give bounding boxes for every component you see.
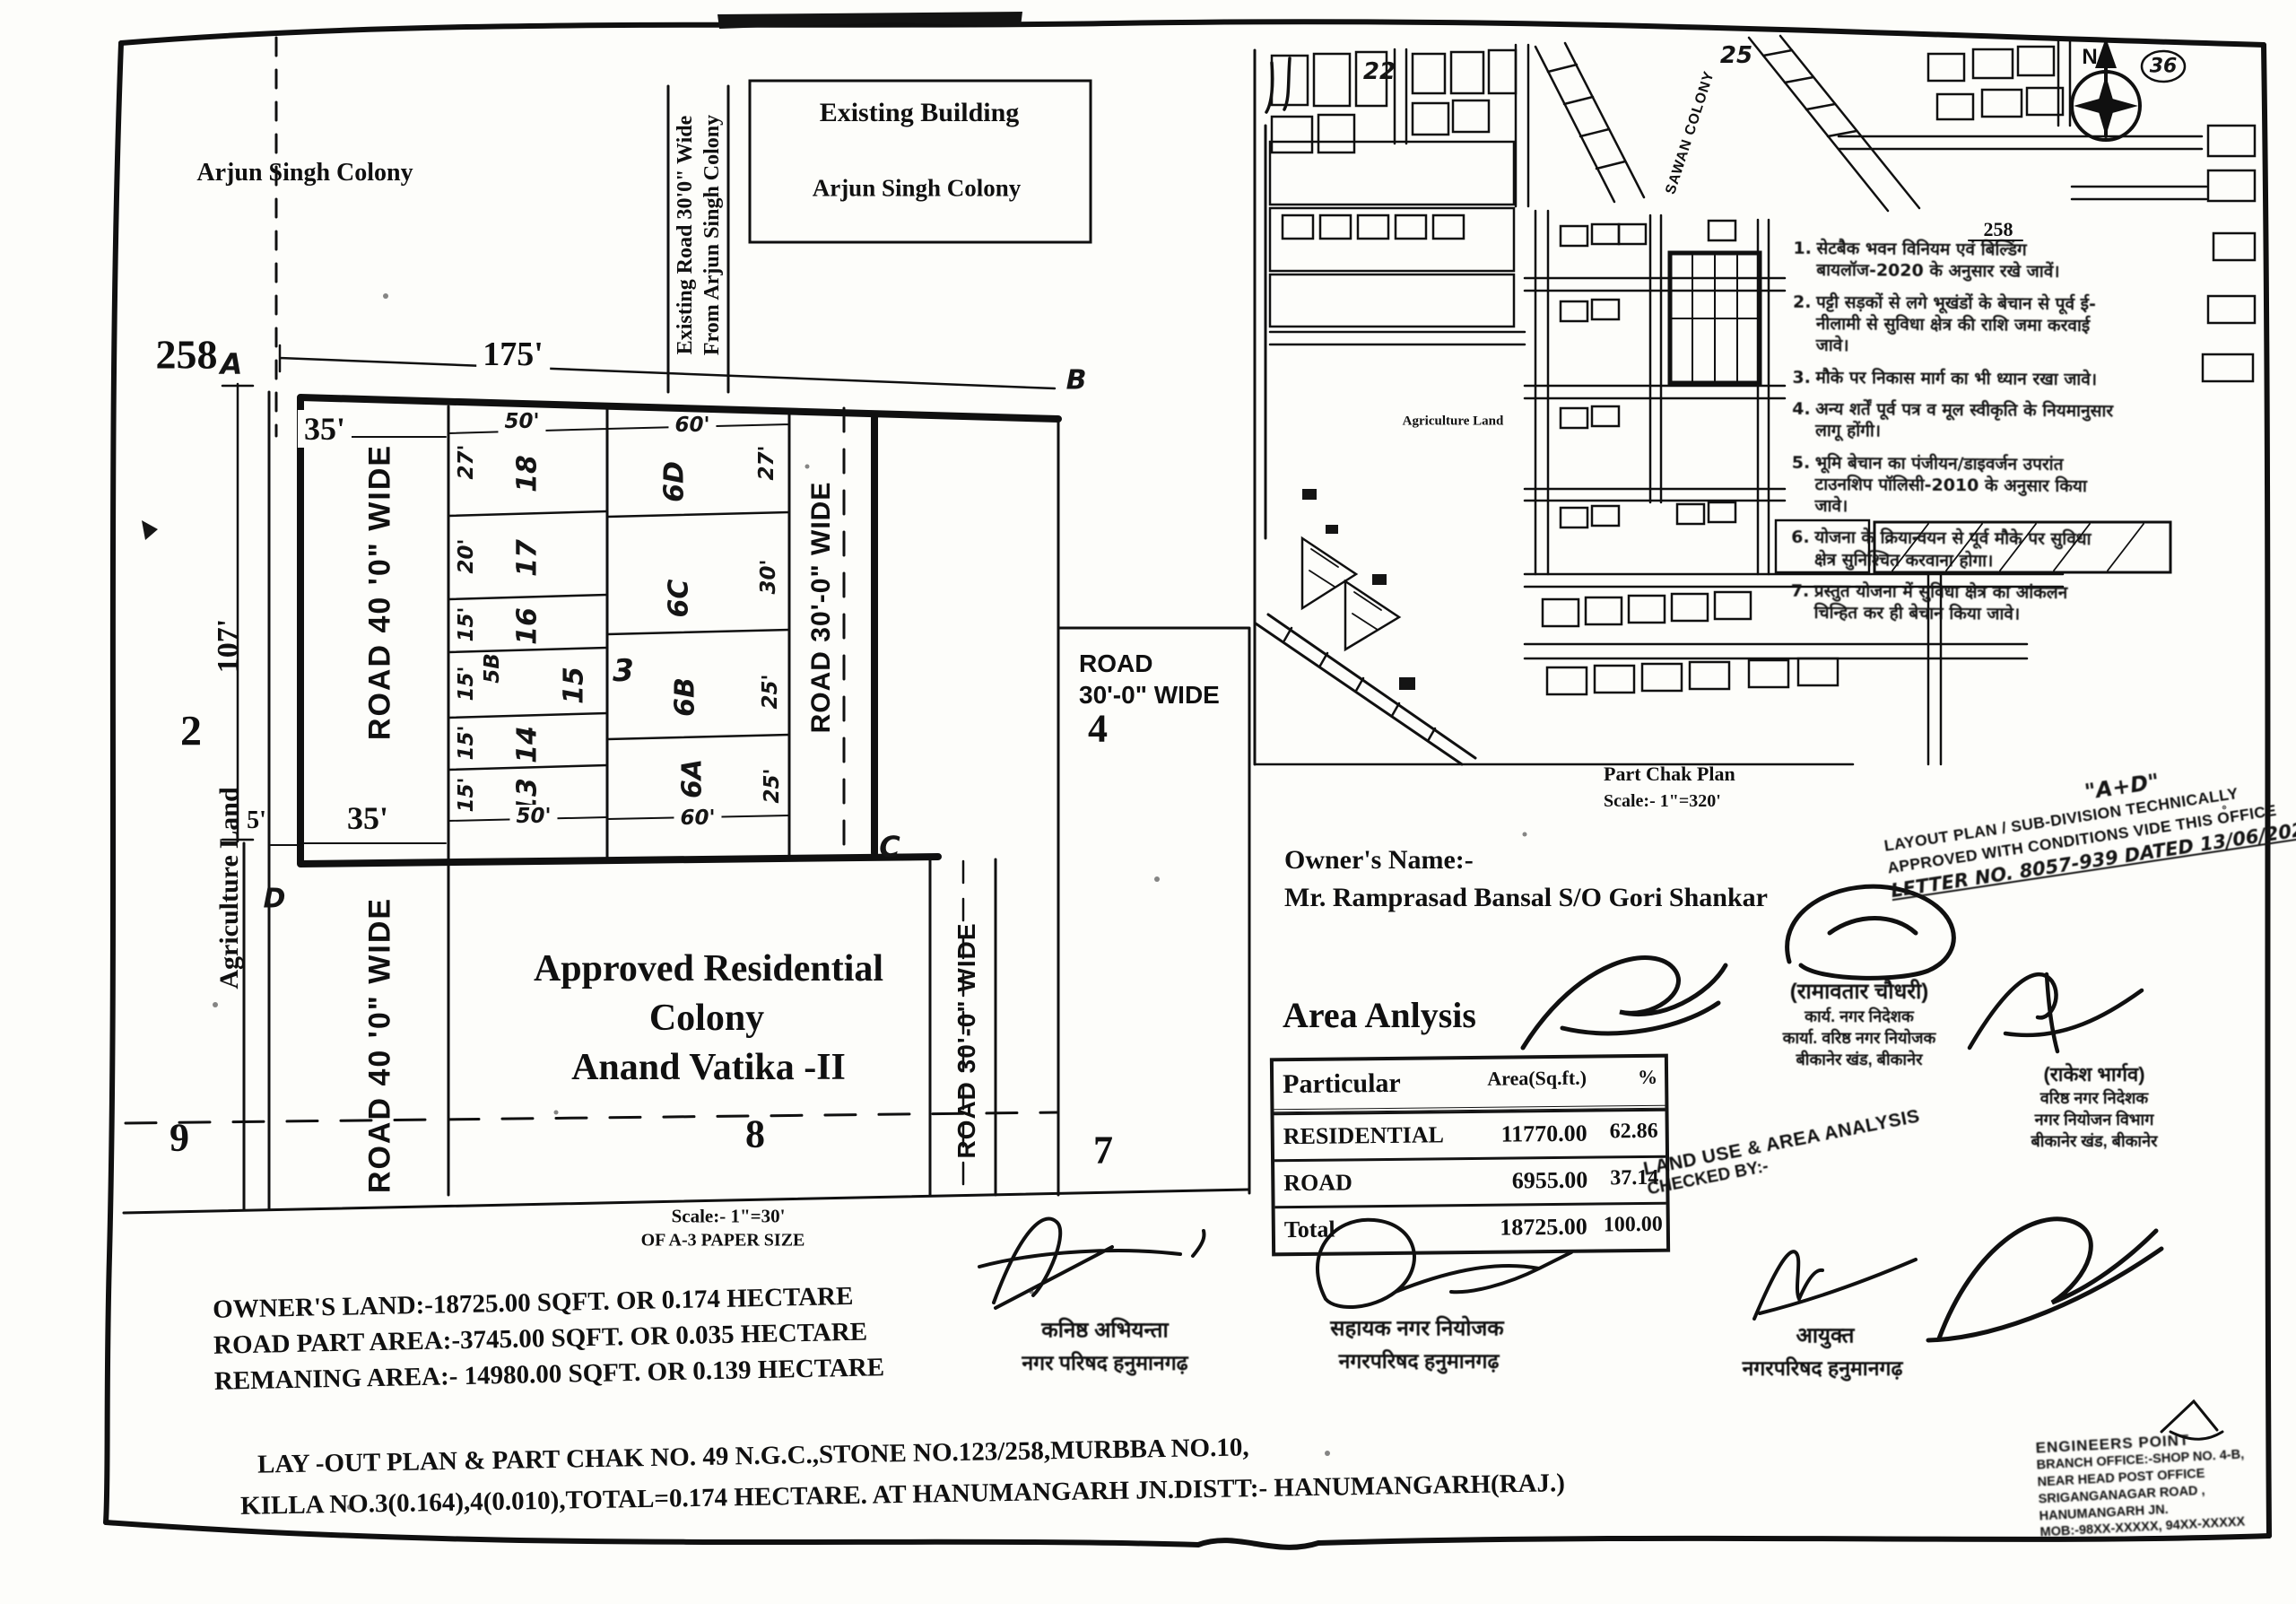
existing-road-line1: Existing Road 30'0" Wide [672, 115, 699, 355]
road-40-lower-label: ROAD 40 '0" WIDE [363, 897, 398, 1193]
chaudhary-stamp: (रामावतार चौधरी) कार्य. नगर निदेशक कार्य… [1756, 976, 1962, 1070]
plot-6d-label: 6D [659, 461, 691, 502]
road-30-inner-label: ROAD 30'-0" WIDE [806, 482, 837, 734]
plot-18-label: 18 [512, 455, 544, 493]
col-particular: Particular [1274, 1059, 1474, 1109]
commissioner-org: नगरपरिषद हनुमानगढ़ [1743, 1353, 1903, 1382]
bhargav-line2: नगर नियोजन विभाग [1991, 1109, 2197, 1130]
agriculture-land-label: Agriculture Land [214, 787, 245, 989]
colony-title-line2: Colony [649, 997, 764, 1040]
cell-total-area: 18725.00 [1474, 1206, 1595, 1251]
hindi-note-item: 5.भूमि बेचान का पंजीयन/डाइवर्जन उपरांत ट… [1791, 451, 2113, 519]
chaudhary-line1: कार्य. नगर निदेशक [1756, 1006, 1962, 1027]
area-analysis-heading: Area Anlysis [1283, 994, 1476, 1036]
owner-name: Mr. Ramprasad Bansal S/O Gori Shankar [1284, 883, 1768, 913]
commissioner-signature [1754, 1251, 1916, 1319]
existing-road-line2: From Arjun Singh Colony [699, 115, 726, 355]
plot-5b-label: 5B [481, 653, 504, 684]
agency-stamp: ENGINEERS POINT BRANCH OFFICE:-SHOP NO. … [2035, 1428, 2265, 1542]
existing-building-label: Existing Building [820, 98, 1020, 128]
map-n25-label: 25 [1720, 42, 1752, 69]
dim-6a: 25' [761, 768, 784, 803]
scale-note-line1: Scale:- 1"=30' [672, 1206, 786, 1228]
block-3-label: 3 [613, 653, 634, 689]
cell-residential-pct: 62.86 [1594, 1111, 1665, 1156]
dim-row-16: 15' [455, 606, 478, 641]
north-label: N [2082, 45, 2097, 70]
road-30-box-line1: ROAD [1079, 648, 1220, 679]
hindi-conditions-list: 1.सेटबैक भवन विनियम एवं बिल्डिंग बायलॉज-… [1790, 238, 2114, 636]
existing-road-label: Existing Road 30'0" Wide From Arjun Sing… [672, 115, 726, 355]
dim-row-17: 20' [455, 538, 478, 573]
part-chak-scale: Scale:- 1"=320' [1604, 791, 1721, 812]
hindi-note-item: 7.प्रस्तुत योजना में सुविधा क्षेत्र का आ… [1791, 580, 2112, 626]
dim-row-18: 27' [455, 444, 478, 479]
map-agriculture-label: Agriculture Land [1403, 414, 1504, 430]
dim-6b: 25' [759, 674, 782, 709]
chaudhary-line2: कार्या. वरिष्ठ नगर नियोजक [1756, 1027, 1962, 1049]
dim-row-13: 15' [455, 777, 478, 812]
dim-35-top-label: 35' [298, 410, 352, 448]
dim-50-bottom: 50' [509, 805, 557, 828]
plot-8-label: 8 [745, 1111, 765, 1157]
asst-planner-title: सहायक नगर नियोजक [1330, 1313, 1503, 1343]
col-percent: % [1594, 1058, 1665, 1106]
cell-road: ROAD [1274, 1160, 1474, 1206]
dim-60-top: 60' [668, 414, 716, 437]
bhargav-signature [1970, 974, 2142, 1051]
map-n22-label: 22 [1363, 58, 1396, 85]
chaudhary-name: (रामावतार चौधरी) [1756, 976, 1962, 1006]
dim-50-top: 50' [498, 410, 545, 433]
bhargav-line1: वरिष्ठ नगर निदेशक [1991, 1087, 2197, 1109]
table-row: ROAD 6955.00 37.14 [1274, 1155, 1666, 1207]
hindi-note-item: 3.मौके पर निकास मार्ग का भी ध्यान रखा जा… [1792, 366, 2113, 390]
stone-258-label: 258 [156, 331, 218, 379]
corner-d-label: D [264, 884, 286, 915]
circled-36-label: 36 [2150, 56, 2178, 78]
plot-6c-label: 6C [664, 580, 695, 618]
table-row: Total 18725.00 100.00 [1275, 1202, 1667, 1253]
jr-engineer-title: कनिष्ठ अभियन्ता [1041, 1315, 1168, 1345]
plot-14-label: 14 [512, 726, 544, 763]
dim-35-bottom-label: 35' [341, 799, 395, 837]
cell-total-pct: 100.00 [1595, 1205, 1667, 1250]
cell-residential-area: 11770.00 [1474, 1112, 1595, 1157]
table-row: RESIDENTIAL 11770.00 62.86 [1274, 1109, 1665, 1160]
corner-b-label: B [1066, 365, 1087, 397]
frame-left [106, 43, 121, 1522]
bhargav-name: (राकेश भार्गव) [1991, 1060, 2197, 1087]
dim-5-label: 5' [247, 806, 266, 835]
owner-signature [1523, 958, 1726, 1048]
scale-note-line2: OF A-3 PAPER SIZE [641, 1231, 805, 1251]
road-30-box-label: ROAD 30'-0" WIDE [1079, 648, 1220, 710]
hindi-note-item: 4.अन्य शर्तें पूर्व पत्र व मूल स्वीकृति … [1792, 398, 2113, 444]
asst-planner-org: नगरपरिषद हनुमानगढ़ [1339, 1346, 1500, 1374]
cell-road-area: 6955.00 [1474, 1159, 1596, 1204]
hindi-note-item: 2.पट्टी सड़कों से लगे भूखंडों के बेचान स… [1793, 291, 2115, 358]
dim-60-bottom: 60' [674, 806, 721, 830]
corner-a-label: A [221, 347, 243, 381]
cell-total: Total [1275, 1207, 1475, 1252]
dim-6c: 30' [757, 559, 780, 594]
part-chak-title: Part Chak Plan [1604, 763, 1735, 786]
dim-6d: 27' [755, 445, 778, 480]
cell-residential: RESIDENTIAL [1274, 1113, 1474, 1159]
area-notes: OWNER'S LAND:-18725.00 SQFT. OR 0.174 HE… [213, 1277, 885, 1399]
hindi-note-item: 6.योजना के क्रियान्वयन से पूर्व मौके पर … [1791, 527, 2112, 572]
dim-107-label: 107' [212, 619, 246, 673]
plot-15-label: 15 [559, 667, 590, 704]
bhargav-stamp: (राकेश भार्गव) वरिष्ठ नगर निदेशक नगर निय… [1991, 1060, 2197, 1152]
dim-row-14: 15' [455, 725, 478, 760]
dim-175-label: 175' [476, 335, 550, 374]
plot-6a-label: 6A [677, 759, 709, 798]
bhargav-line3: बीकानेर खंड, बीकानेर [1991, 1130, 2197, 1152]
frame-top [121, 22, 2264, 45]
checkedby-signature [1928, 1219, 2161, 1340]
corner-c-label: C [879, 830, 900, 864]
chaudhary-signature [1787, 886, 1954, 978]
commissioner-title: आयुक्त [1796, 1321, 1855, 1350]
road-30-lower-label: ROAD 30'-0" WIDE [952, 922, 981, 1158]
jr-engineer-signature [979, 1219, 1205, 1308]
existing-building-colony-label: Arjun Singh Colony [813, 175, 1022, 203]
col-area: Area(Sq.ft.) [1474, 1059, 1595, 1107]
plot-2-label: 2 [180, 707, 202, 756]
owner-heading: Owner's Name:- [1284, 845, 1474, 876]
hindi-note-item: 1.सेटबैक भवन विनियम एवं बिल्डिंग बायलॉज-… [1793, 238, 2114, 283]
jr-engineer-org: नगर परिषद हनुमानगढ़ [1022, 1347, 1187, 1376]
plot-17-label: 17 [512, 539, 544, 577]
plot-16-label: 16 [512, 607, 544, 645]
frame-bottom [106, 1522, 2269, 1547]
chaudhary-line3: बीकानेर खंड, बीकानेर [1756, 1049, 1962, 1070]
table-header-row: Particular Area(Sq.ft.) % [1274, 1058, 1665, 1113]
plot-7-label: 7 [1093, 1128, 1113, 1173]
colony-title-line3: Anand Vatika -II [571, 1046, 846, 1089]
arjun-singh-colony-label: Arjun Singh Colony [196, 159, 413, 187]
scanned-layout-plan: Arjun Singh Colony Existing Building Arj… [0, 0, 2296, 1604]
plot-9-label: 9 [170, 1115, 189, 1161]
map-258-label: 258 [1984, 218, 2013, 241]
plot-6b-label: 6B [670, 677, 701, 717]
plot-4-label: 4 [1088, 706, 1108, 752]
dim-row-15: 15' [455, 666, 478, 701]
area-analysis-table: Particular Area(Sq.ft.) % RESIDENTIAL 11… [1270, 1054, 1670, 1257]
road-40-upper-label: ROAD 40 '0" WIDE [363, 444, 398, 740]
colony-title-line1: Approved Residential [534, 947, 883, 990]
